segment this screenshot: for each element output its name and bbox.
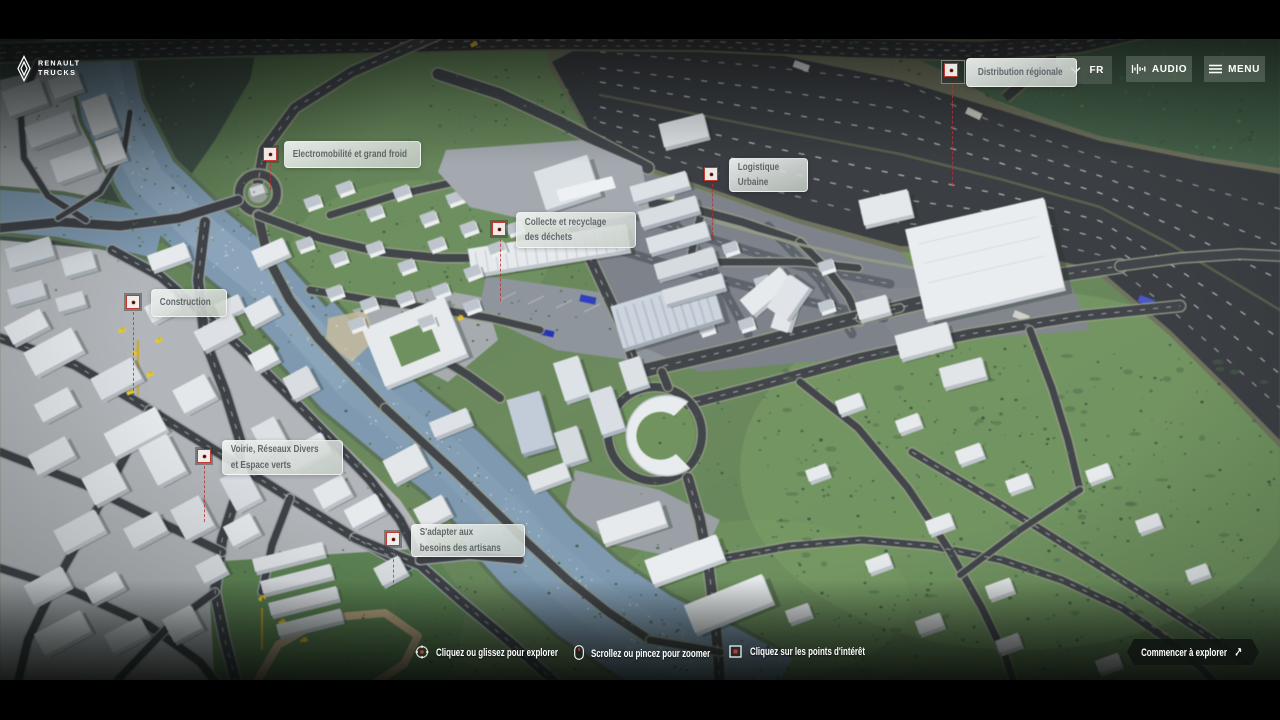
svg-text:RENAULT: RENAULT: [38, 59, 80, 68]
svg-text:TRUCKS: TRUCKS: [38, 68, 76, 77]
